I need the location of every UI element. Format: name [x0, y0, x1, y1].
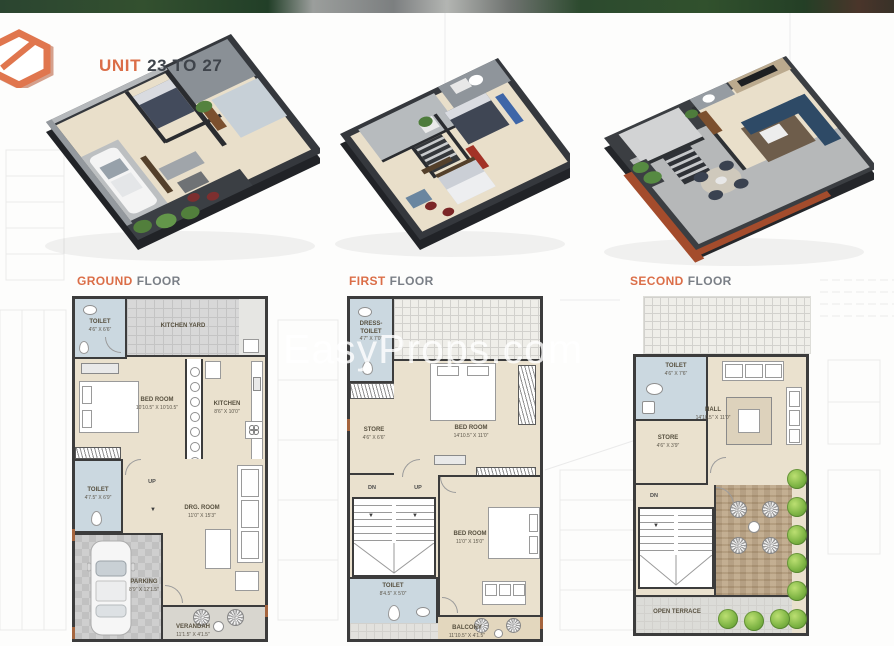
gf-yard-ledge	[239, 299, 265, 357]
ff-wardrobe-left	[350, 383, 396, 399]
toilet-seat	[79, 341, 89, 354]
room-label: BED ROOM10'10.5" X 10'10.5"	[129, 397, 185, 411]
washbasin	[416, 607, 430, 617]
side-seat	[786, 387, 802, 445]
second-floor-header: SECONDFLOOR	[630, 274, 732, 288]
stove	[245, 421, 263, 439]
gf-toilet-mid: TOILET4'7.5" X 6'9"	[75, 459, 123, 533]
room-label: BED ROOM14'10.5" X 11'0"	[440, 425, 502, 439]
dresser	[81, 363, 119, 374]
door-jamb	[347, 419, 350, 431]
room-label: BALCONY11'10.5" X 4'1.5"	[438, 625, 496, 639]
sink	[253, 377, 261, 391]
page-title-rest: 23 TO 27	[147, 56, 222, 75]
plant	[787, 581, 807, 601]
stairs-up-label: UP	[404, 485, 432, 491]
stairs-dn-label: DN	[642, 493, 666, 499]
round-table	[748, 521, 760, 533]
ground-floor-header: GROUNDFLOOR	[77, 274, 181, 288]
sf-stairs: ▼	[638, 507, 714, 589]
washbasin	[358, 307, 372, 317]
ff-bed-room-top: BED ROOM14'10.5" X 11'0"	[394, 359, 540, 475]
plant	[787, 553, 807, 573]
gf-parking: PARKING8'9" X 12'1.5"	[75, 533, 163, 639]
second-floor-3d-render	[584, 50, 874, 268]
gf-verandah: VERANDAH11'1.5" X 4'1.5"	[163, 605, 265, 639]
page-title-accent: UNIT	[99, 56, 141, 75]
sf-store: STORE4'6" X 3'9"	[636, 421, 708, 485]
coffee-table	[205, 529, 231, 569]
room-label: OPEN TERRACE	[642, 609, 712, 617]
fridge	[205, 361, 221, 379]
stair-landing	[640, 555, 712, 587]
room-label: VERANDAH11'1.5" X 4'1.5"	[163, 624, 223, 638]
gf-wardrobe	[75, 447, 121, 459]
ground-floor-header-rest: FLOOR	[137, 274, 181, 288]
room-label: TOILET4'7.5" X 6'9"	[77, 487, 119, 501]
door-jamb	[265, 605, 268, 617]
rattan-chair	[506, 618, 521, 633]
sf-void	[643, 296, 811, 354]
stairs-dn-label: DN	[358, 485, 386, 491]
washbasin	[83, 305, 97, 315]
plant	[787, 497, 807, 517]
room-label: TOILET4'6" X 6'6"	[77, 319, 123, 333]
stairs-up-label: UP	[123, 479, 181, 485]
wardrobe	[518, 365, 536, 425]
armchair	[235, 571, 259, 591]
room-label: TOILET8'4.5" X 5'0"	[366, 583, 420, 597]
room-label: PARKING8'9" X 12'1.5"	[127, 579, 161, 593]
ff-bed-room-bottom: BED ROOM11'0" X 15'0"	[438, 475, 540, 615]
brochure-page: UNIT23 TO 27	[0, 0, 894, 646]
stair-landing	[354, 543, 434, 575]
plant	[787, 469, 807, 489]
plant	[744, 611, 764, 631]
toilet-seat	[91, 511, 102, 526]
sf-unit: TOILET4'6" X 7'6" HA	[633, 354, 809, 636]
room-label: TOILET4'6" X 7'6"	[650, 363, 702, 377]
dresser	[434, 455, 466, 465]
first-floor-3d-render	[322, 44, 570, 262]
plant	[787, 525, 807, 545]
rattan-chair	[762, 537, 779, 554]
plant	[787, 609, 807, 629]
first-floor-header: FIRSTFLOOR	[349, 274, 434, 288]
ff-balcony: BALCONY11'10.5" X 4'1.5"	[438, 615, 540, 639]
room-label: BED ROOM11'0" X 15'0"	[440, 531, 500, 545]
plant	[718, 609, 738, 629]
ground-floor-header-accent: GROUND	[77, 274, 133, 288]
second-floor-plan: TOILET4'6" X 7'6" HA	[633, 296, 815, 642]
door-jamb	[72, 627, 75, 639]
door-jamb	[540, 617, 543, 629]
plant	[770, 609, 790, 629]
room-label: KITCHEN8'6" X 10'0"	[203, 401, 251, 415]
second-floor-header-accent: SECOND	[630, 274, 684, 288]
sofa	[722, 361, 784, 381]
gf-bed-room: BED ROOM10'10.5" X 10'10.5"	[75, 359, 185, 459]
top-photo-banner	[0, 0, 894, 13]
washbasin	[646, 383, 663, 395]
first-floor-header-accent: FIRST	[349, 274, 386, 288]
ff-store: STORE4'6" X 6'6"	[350, 399, 400, 475]
ff-entry-strip	[350, 623, 438, 639]
ff-toilet: TOILET8'4.5" X 5'0"	[350, 577, 438, 623]
room-label: DRG. ROOM11'0" X 15'3"	[171, 505, 233, 519]
toilet-seat	[388, 605, 400, 621]
door-jamb	[72, 529, 75, 541]
room-label: STORE4'6" X 6'6"	[352, 427, 396, 441]
room-label: KITCHEN YARD	[137, 323, 229, 331]
wash-fixture	[243, 339, 259, 353]
rattan-chair	[762, 501, 779, 518]
washing-machine	[642, 401, 655, 414]
ground-floor-plan: TOILET4'6" X 6'6" KITCHEN YARD BED ROOM1…	[72, 296, 268, 642]
rattan-chair	[227, 609, 244, 626]
page-title: UNIT23 TO 27	[99, 56, 222, 76]
sofa	[237, 465, 263, 563]
room-label: STORE4'6" X 3'9"	[642, 435, 694, 449]
rattan-chair	[730, 537, 747, 554]
first-floor-header-rest: FLOOR	[390, 274, 434, 288]
second-floor-header-rest: FLOOR	[688, 274, 732, 288]
gf-kitchen-yard: KITCHEN YARD	[127, 299, 239, 357]
ff-stairs: ▼ ▼	[352, 497, 436, 577]
brand-logo	[0, 28, 76, 88]
room-label: HALL14'10.5" X 11'0"	[682, 407, 744, 421]
watermark: EasyProps.com	[283, 326, 583, 373]
sofa	[482, 581, 526, 605]
sf-open-terrace: OPEN TERRACE	[636, 595, 792, 633]
